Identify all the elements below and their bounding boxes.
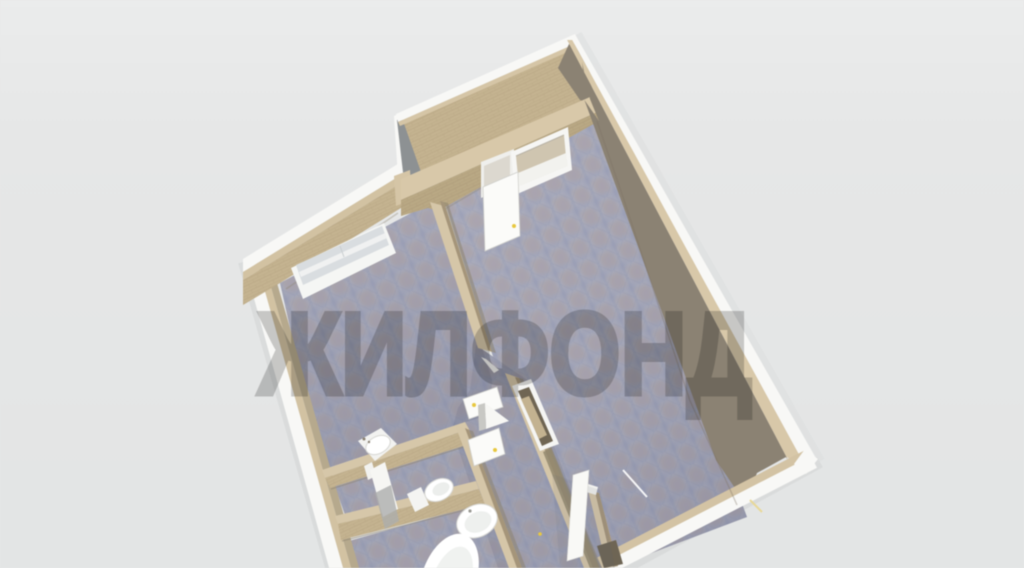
svg-text:ЖИЛФОНД: ЖИЛФОНД: [257, 288, 752, 419]
